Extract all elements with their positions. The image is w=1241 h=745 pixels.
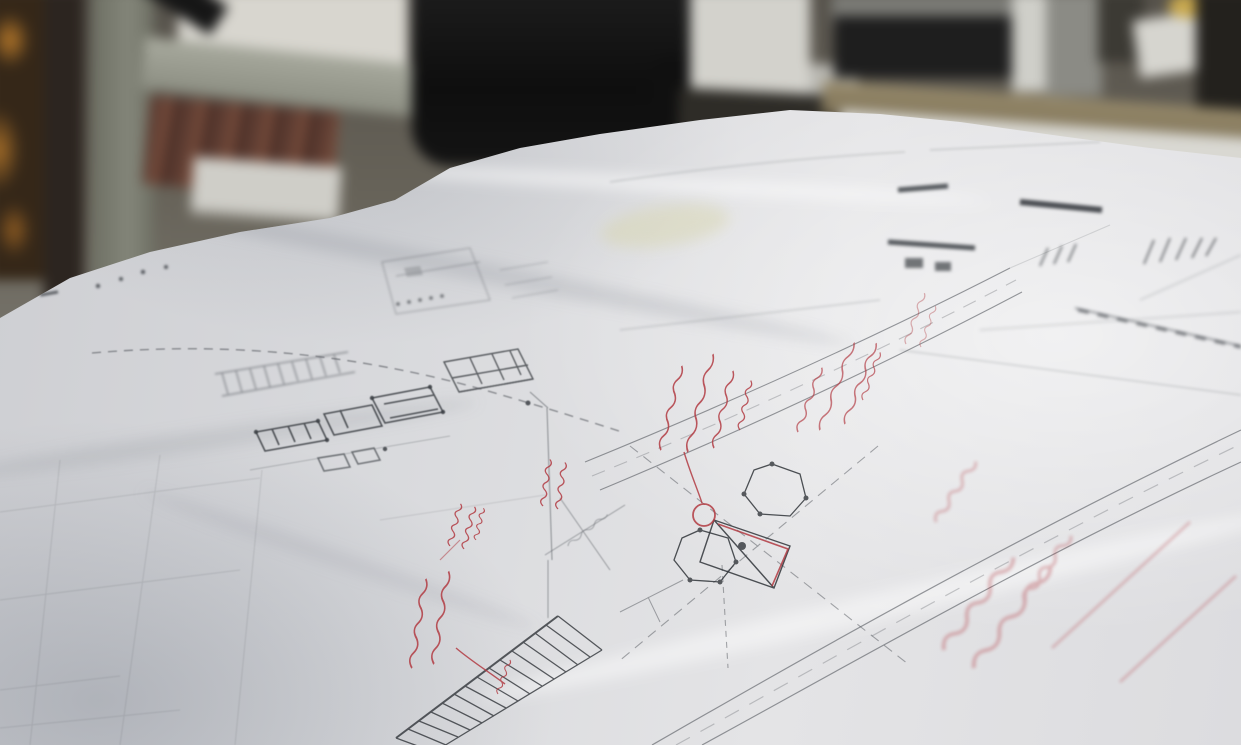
gray-strip	[1046, 0, 1102, 96]
red-circle-markup	[693, 504, 715, 526]
white-strip	[1012, 0, 1048, 92]
connector-structure	[700, 520, 790, 588]
drawer-front	[190, 157, 342, 225]
pencil-near-linework	[396, 225, 1241, 745]
dimension-fork	[545, 498, 625, 618]
red-note-large-faded	[929, 460, 1236, 682]
crossing-diagonal-lines	[618, 446, 908, 668]
dashed-utility-line	[92, 349, 622, 432]
fork-lines-right-of-stairs	[620, 580, 683, 622]
red-annotations	[405, 292, 939, 694]
red-leader-line	[684, 452, 702, 503]
tick-marks-right	[1040, 238, 1216, 266]
amber-light-blobs	[0, 0, 46, 280]
loose-sheet	[1132, 12, 1205, 79]
printer-unit	[834, 16, 1020, 78]
red-note-left-tall	[405, 540, 514, 694]
plan-dot-row	[396, 294, 444, 306]
red-note-left-small	[444, 503, 488, 549]
faint-grid-lines	[0, 455, 545, 745]
photo-blueprint-on-desk	[0, 0, 1241, 745]
lower-road-double-line	[652, 430, 1241, 745]
pencil-mid-linework	[0, 349, 625, 745]
dark-building-cluster-left	[256, 387, 443, 471]
dark-bars-right	[888, 186, 1241, 347]
red-note-upper-pair	[537, 459, 570, 509]
building-cluster-center	[444, 349, 533, 392]
red-note-center	[654, 354, 788, 586]
red-note-along-road	[792, 342, 884, 432]
